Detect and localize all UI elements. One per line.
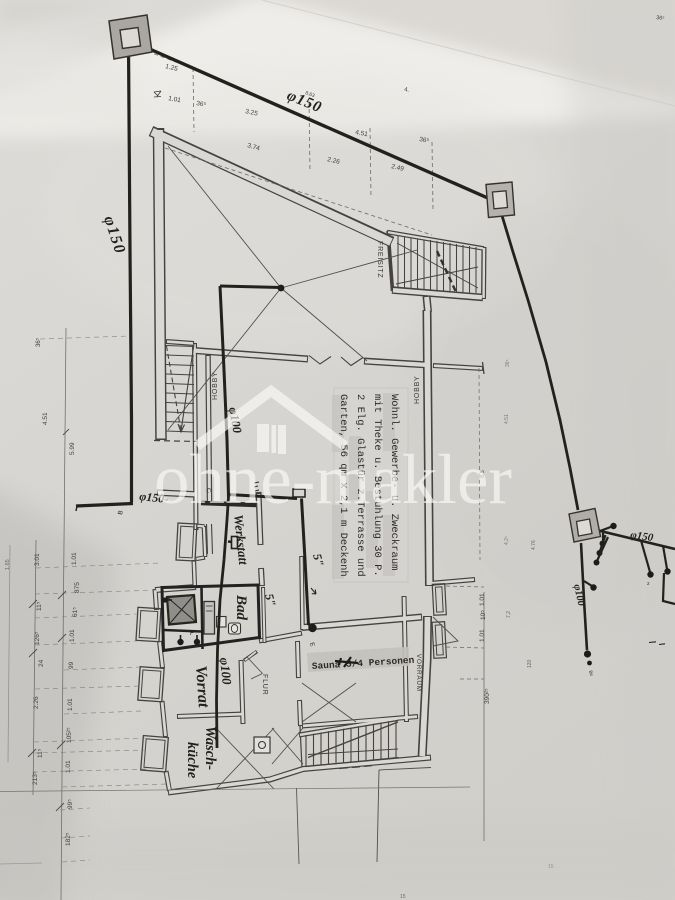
svg-text:VORRAUM: VORRAUM bbox=[415, 654, 422, 692]
svg-text:99⁵: 99⁵ bbox=[67, 799, 74, 809]
svg-text:1.01: 1.01 bbox=[479, 629, 486, 642]
svg-text:61⁵: 61⁵ bbox=[72, 607, 79, 617]
svg-text:24: 24 bbox=[38, 659, 45, 667]
svg-text:1.01: 1.01 bbox=[71, 552, 78, 565]
svg-text:1.01: 1.01 bbox=[69, 629, 76, 642]
svg-text:FREISITZ: FREISITZ bbox=[376, 241, 383, 279]
svg-text:10⁵: 10⁵ bbox=[480, 610, 487, 620]
svg-text:1.01: 1.01 bbox=[65, 760, 72, 773]
svg-text:1.01: 1.01 bbox=[479, 593, 486, 606]
svg-text:36⁵: 36⁵ bbox=[656, 14, 665, 22]
svg-text:küche: küche bbox=[184, 742, 200, 779]
svg-text:15: 15 bbox=[548, 864, 554, 870]
svg-text:3.01: 3.01 bbox=[34, 553, 41, 566]
svg-text:Bad: Bad bbox=[233, 594, 249, 621]
svg-text:1.65: 1.65 bbox=[5, 559, 11, 570]
svg-text:15: 15 bbox=[400, 894, 406, 900]
svg-text:HOBBY: HOBBY bbox=[212, 371, 219, 400]
svg-text:5.99: 5.99 bbox=[69, 442, 76, 455]
svg-text:182⁵: 182⁵ bbox=[65, 832, 72, 846]
svg-text:φ100: φ100 bbox=[217, 657, 235, 686]
svg-text:11⁵: 11⁵ bbox=[36, 601, 43, 611]
svg-text:4.51: 4.51 bbox=[504, 414, 510, 424]
svg-text:36⁵: 36⁵ bbox=[35, 337, 42, 347]
svg-text:875: 875 bbox=[74, 582, 81, 593]
svg-text:390²⁵: 390²⁵ bbox=[484, 688, 491, 704]
svg-text:2.26: 2.26 bbox=[33, 696, 40, 709]
svg-text:F: F bbox=[190, 631, 194, 637]
svg-text:HOBBY: HOBBY bbox=[414, 375, 421, 404]
svg-text:126⁵: 126⁵ bbox=[34, 631, 41, 645]
svg-text:7,2: 7,2 bbox=[506, 611, 512, 618]
svg-text:1.01: 1.01 bbox=[67, 698, 74, 711]
svg-text:4.76: 4.76 bbox=[531, 540, 537, 550]
svg-text:FLUR: FLUR bbox=[261, 674, 268, 695]
svg-text:4,2⁵: 4,2⁵ bbox=[504, 536, 510, 545]
svg-text:11⁵: 11⁵ bbox=[37, 748, 44, 758]
svg-text:36⁵: 36⁵ bbox=[505, 359, 511, 367]
svg-text:ohne-makler: ohne-makler bbox=[154, 441, 512, 519]
svg-text:105²⁵: 105²⁵ bbox=[66, 727, 73, 743]
svg-text:99: 99 bbox=[68, 661, 75, 669]
svg-text:4.51: 4.51 bbox=[42, 412, 49, 425]
svg-text:Vorrat: Vorrat bbox=[192, 665, 212, 708]
svg-text:213⁵: 213⁵ bbox=[32, 771, 39, 785]
svg-text:120: 120 bbox=[527, 659, 533, 668]
